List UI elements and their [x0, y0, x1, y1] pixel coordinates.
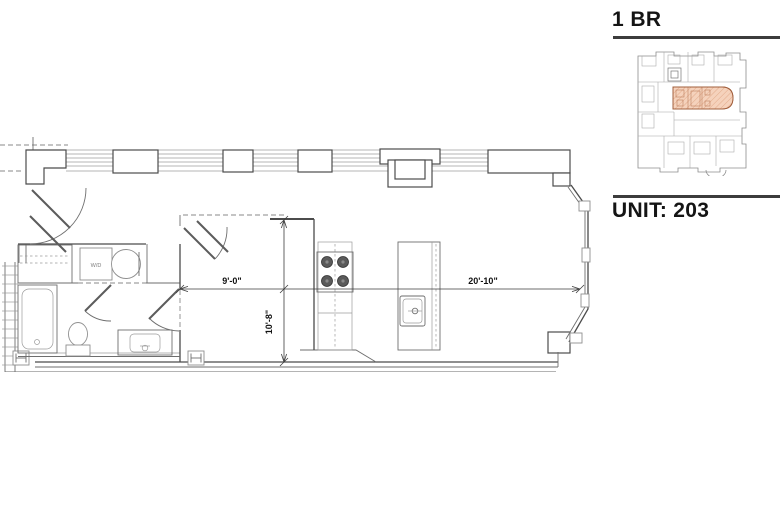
key-plan — [628, 48, 748, 176]
unit-type-heading: 1 BR — [612, 8, 661, 31]
key-plan-highlighted-unit — [673, 87, 733, 109]
key-plan-building — [638, 52, 746, 176]
bathtub-icon — [18, 285, 57, 353]
toilet-icon — [66, 323, 90, 357]
divider-top — [613, 36, 780, 39]
dim-bedroom-depth: 10'-8" — [264, 310, 274, 334]
dimension-lines: 9'-0" 20'-10" 10'-8" — [176, 216, 584, 366]
closet-door-arc — [215, 227, 227, 259]
kitchen — [317, 242, 440, 350]
island-sink-icon — [400, 296, 425, 326]
bay-window — [566, 185, 590, 343]
dim-bedroom-width: 9'-0" — [222, 276, 241, 286]
dim-living-length: 20'-10" — [468, 276, 497, 286]
divider-bottom — [613, 195, 780, 198]
floor-plan-page: W/D — [0, 0, 780, 517]
bathroom — [18, 285, 172, 356]
washer-dryer-closet: W/D — [80, 248, 141, 280]
dryer-icon — [112, 250, 141, 279]
washer-dryer-label: W/D — [91, 263, 102, 269]
interior-walls — [18, 215, 314, 362]
vanity-sink-icon — [118, 330, 172, 355]
bathroom-door-arc — [149, 318, 179, 331]
kitchen-island — [398, 242, 440, 350]
unit-number-heading: UNIT: 203 — [612, 199, 709, 222]
hall-door-arc — [85, 311, 111, 321]
